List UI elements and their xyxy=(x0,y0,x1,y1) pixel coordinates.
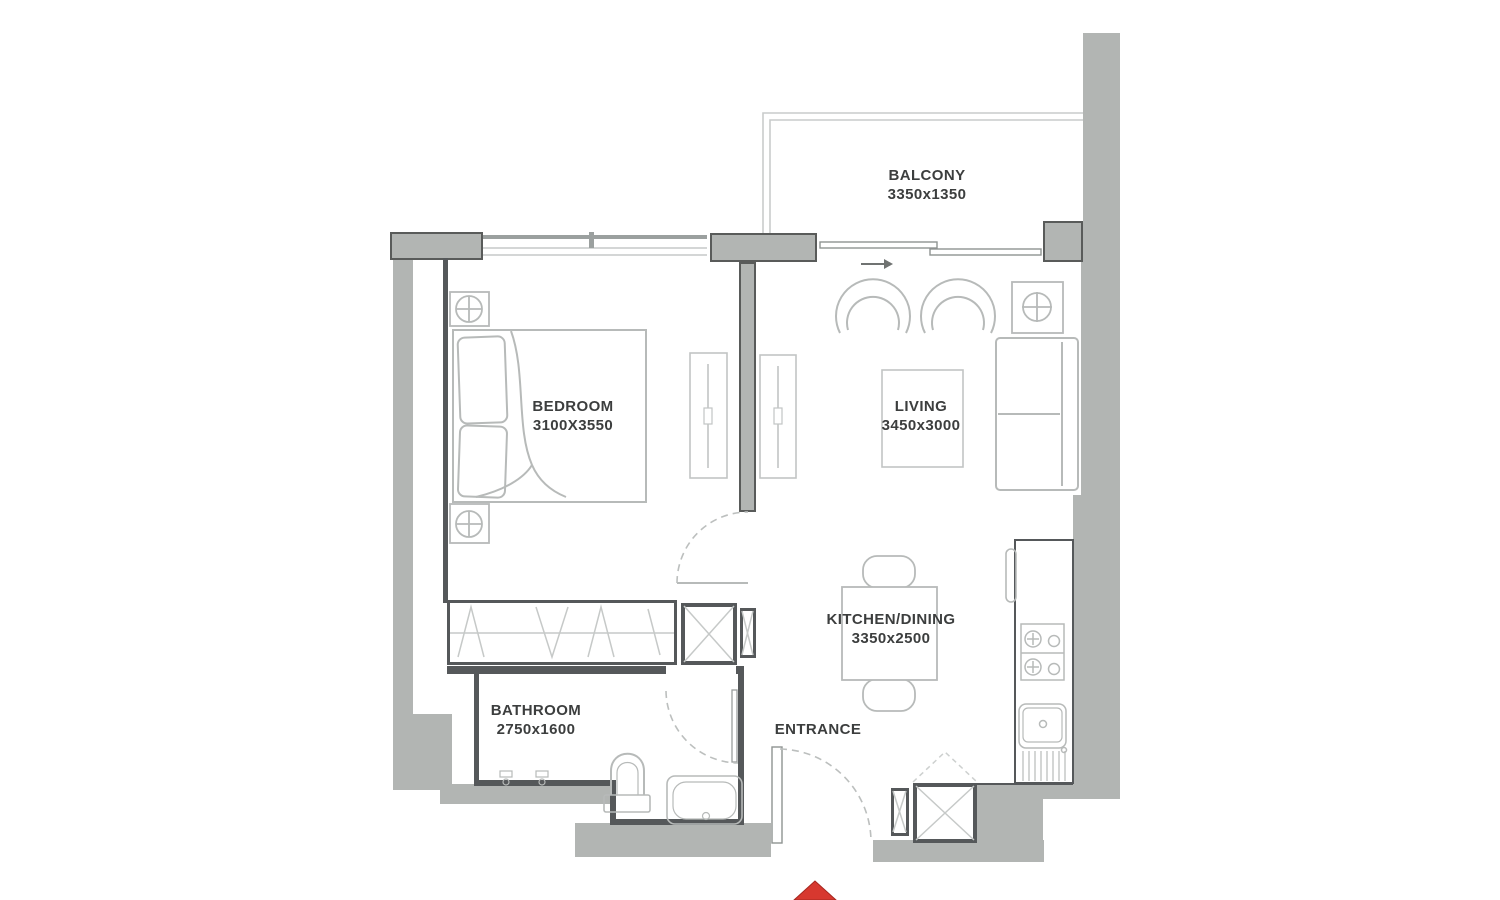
wall-balcony-corner xyxy=(1043,221,1083,262)
wall-bathroom-bottom-west xyxy=(474,780,616,786)
balcony-sliding-door xyxy=(820,242,1041,255)
nightstand-top xyxy=(450,292,489,326)
armchair-right xyxy=(921,279,995,333)
wall-bathroom-top-left xyxy=(447,666,666,674)
bathtub xyxy=(667,776,742,824)
wall-left xyxy=(393,232,413,724)
nightstand-bottom xyxy=(450,504,489,543)
room-name: BEDROOM xyxy=(532,397,613,416)
wall-bathroom-west xyxy=(474,674,479,786)
sliding-direction-arrow-icon xyxy=(861,259,893,269)
bedroom-label: BEDROOM 3100X3550 xyxy=(532,397,613,435)
side-table xyxy=(1012,282,1063,333)
kitchen-dining-label: KITCHEN/DINING 3350x2500 xyxy=(827,610,956,648)
wall-kitchen-bottom xyxy=(975,783,1120,799)
armchair-left xyxy=(836,279,910,333)
room-dims: 3100X3550 xyxy=(532,416,613,435)
room-dims: 3450x3000 xyxy=(882,416,961,435)
sofa xyxy=(996,338,1078,490)
room-dims: 3350x1350 xyxy=(888,185,967,204)
sink xyxy=(1019,704,1067,781)
lamp-icon xyxy=(1022,292,1052,322)
entry-arrow-icon xyxy=(794,881,836,900)
living-cabinet xyxy=(760,355,796,478)
living-label: LIVING 3450x3000 xyxy=(882,397,961,435)
wall-top-left-corner xyxy=(390,232,483,260)
wall-bath-bottom-west xyxy=(440,784,616,804)
wall-elevator-fill xyxy=(977,798,1043,845)
column-left xyxy=(740,608,756,658)
wardrobe xyxy=(447,600,677,665)
wall-right-mid xyxy=(1081,244,1120,496)
floor-plan: BALCONY 3350x1350 BEDROOM 3100X3550 LIVI… xyxy=(0,0,1500,900)
fridge xyxy=(1006,549,1016,602)
kitchen-counter xyxy=(1006,540,1073,783)
column-right xyxy=(891,788,909,836)
balcony-label: BALCONY 3350x1350 xyxy=(888,166,967,204)
wall-bathroom-bottom-east xyxy=(612,819,743,825)
lamp-icon xyxy=(456,511,482,537)
room-name: BALCONY xyxy=(888,166,967,185)
entrance-door xyxy=(772,747,871,843)
wall-bath-bottom-east xyxy=(575,823,756,857)
bathroom-door xyxy=(666,690,738,763)
wall-entrance-left-step xyxy=(740,823,771,857)
wall-bedroom-west xyxy=(443,258,448,603)
room-dims: 2750x1600 xyxy=(491,720,581,739)
wall-right-lower xyxy=(1073,495,1120,798)
bathroom-label: BATHROOM 2750x1600 xyxy=(491,701,581,739)
room-name: ENTRANCE xyxy=(775,720,862,739)
wall-left-foot xyxy=(393,714,452,790)
room-name: KITCHEN/DINING xyxy=(827,610,956,629)
elevator-shaft xyxy=(913,783,977,843)
room-name: LIVING xyxy=(882,397,961,416)
wall-partition-head xyxy=(710,233,817,262)
wall-bathroom-top-right xyxy=(736,666,744,674)
bedroom-cabinet xyxy=(690,353,727,478)
bedroom-door xyxy=(677,512,748,583)
room-dims: 3350x2500 xyxy=(827,629,956,648)
wall-entrance-west xyxy=(738,674,744,825)
wall-right-upper xyxy=(1083,33,1120,263)
entrance-label: ENTRANCE xyxy=(775,720,862,739)
room-name: BATHROOM xyxy=(491,701,581,720)
lamp-icon xyxy=(456,296,482,322)
duct-shaft xyxy=(681,603,737,665)
stove xyxy=(1021,624,1064,680)
wall-partition-stem xyxy=(739,262,756,512)
bedroom-window xyxy=(483,232,707,255)
